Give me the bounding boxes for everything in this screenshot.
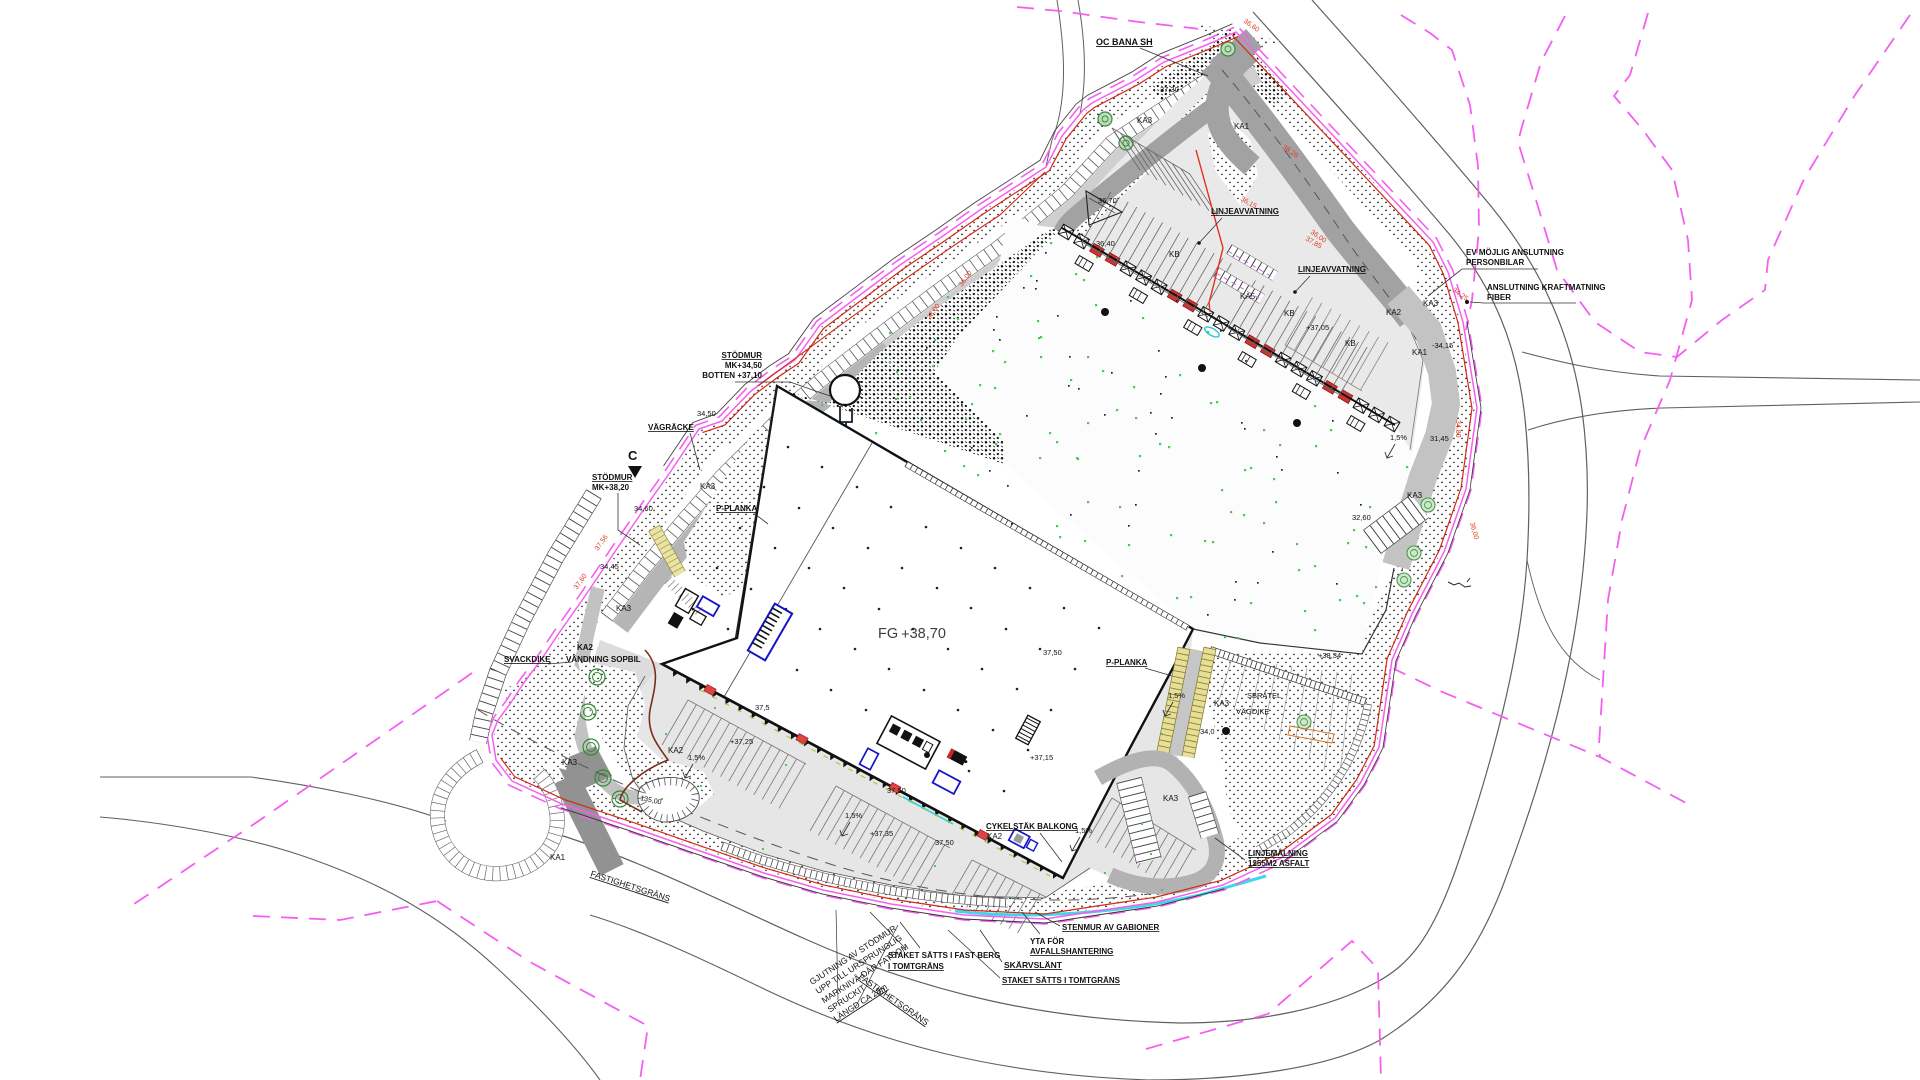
- svg-text:BOTTEN +37,10: BOTTEN +37,10: [702, 371, 762, 380]
- svg-text:KA3: KA3: [616, 604, 632, 613]
- svg-text:EV MÖJLIG ANSLUTNING: EV MÖJLIG ANSLUTNING: [1466, 248, 1564, 257]
- svg-text:KA5.: KA5.: [1240, 292, 1257, 301]
- svg-text:1,5%: 1,5%: [688, 753, 705, 762]
- svg-text:KB: KB: [1345, 339, 1356, 348]
- svg-text:VÄGDIKE: VÄGDIKE: [1236, 707, 1269, 716]
- svg-text:LINJEMÅLNING: LINJEMÅLNING: [1248, 849, 1308, 858]
- svg-text:KA2: KA2: [987, 832, 1003, 841]
- svg-text:34,45: 34,45: [600, 562, 619, 571]
- svg-text:36,70: 36,70: [1098, 196, 1117, 205]
- svg-text:P-PLANKA: P-PLANKA: [716, 504, 758, 513]
- svg-text:+38,34: +38,34: [1318, 651, 1341, 660]
- svg-text:1255M2 ASFALT: 1255M2 ASFALT: [1248, 859, 1309, 868]
- svg-text:+37,15: +37,15: [1030, 753, 1053, 762]
- svg-text:STÖDMUR: STÖDMUR: [722, 351, 763, 360]
- svg-text:34,80: 34,80: [1454, 420, 1461, 438]
- svg-text:37,50: 37,50: [887, 786, 906, 795]
- svg-text:KA1: KA1: [1412, 348, 1428, 357]
- svg-text:+37,25: +37,25: [730, 737, 753, 746]
- svg-text:KA2: KA2: [577, 643, 594, 652]
- svg-text:+37,35: +37,35: [870, 829, 893, 838]
- svg-text:OC BANA SH: OC BANA SH: [1096, 37, 1153, 47]
- svg-text:1,5%: 1,5%: [1168, 691, 1185, 700]
- svg-text:34,0: 34,0: [1200, 727, 1215, 736]
- svg-text:34,60: 34,60: [634, 504, 653, 513]
- svg-text:KA3: KA3: [1423, 299, 1439, 308]
- svg-text:PERSONBILAR: PERSONBILAR: [1466, 258, 1524, 267]
- svg-text:SKÄRVSLÄNT: SKÄRVSLÄNT: [1004, 960, 1063, 970]
- svg-text:AVFALLSHANTERING: AVFALLSHANTERING: [1030, 947, 1113, 956]
- svg-text:37,50: 37,50: [935, 838, 954, 847]
- svg-text:P-PLANKA: P-PLANKA: [1106, 658, 1148, 667]
- svg-text:KA3: KA3: [1137, 116, 1153, 125]
- svg-text:31,45: 31,45: [1430, 434, 1449, 443]
- svg-text:KA3: KA3: [562, 758, 578, 767]
- svg-text:STÖDMUR: STÖDMUR: [592, 473, 633, 482]
- svg-text:I TOMTGRÄNS: I TOMTGRÄNS: [888, 962, 945, 971]
- svg-text:37,5: 37,5: [755, 703, 770, 712]
- svg-text:KB: KB: [1284, 309, 1295, 318]
- svg-text:C: C: [628, 448, 638, 463]
- svg-text:CYKELSTÄK BALKONG: CYKELSTÄK BALKONG: [986, 822, 1078, 831]
- svg-text:STAKET SÄTTS I TOMTGRÄNS: STAKET SÄTTS I TOMTGRÄNS: [1002, 976, 1121, 985]
- svg-text:36,40: 36,40: [1096, 239, 1115, 248]
- svg-text:SBRÅTEL: SBRÅTEL: [1247, 691, 1281, 700]
- svg-text:1,5%: 1,5%: [845, 811, 862, 820]
- svg-text:LINJEAVVATNING: LINJEAVVATNING: [1211, 207, 1279, 216]
- svg-text:VÄNDNING SOPBIL: VÄNDNING SOPBIL: [566, 655, 641, 664]
- svg-text:MK+34,50: MK+34,50: [725, 361, 763, 370]
- svg-text:KA2: KA2: [1386, 308, 1402, 317]
- svg-text:34,50: 34,50: [697, 409, 716, 418]
- svg-text:KB: KB: [1169, 250, 1180, 259]
- svg-text:KA3: KA3: [1163, 794, 1179, 803]
- svg-text:KA3: KA3: [1407, 491, 1423, 500]
- svg-text:KA1: KA1: [1234, 122, 1250, 131]
- svg-text:37,50: 37,50: [1043, 648, 1062, 657]
- svg-text:STENMUR AV GABIONER: STENMUR AV GABIONER: [1062, 923, 1160, 932]
- svg-text:1,5%: 1,5%: [1075, 826, 1092, 835]
- svg-text:LINJEAVVATNING: LINJEAVVATNING: [1298, 265, 1366, 274]
- svg-text:KA3: KA3: [1214, 699, 1230, 708]
- svg-text:37,30: 37,30: [1160, 85, 1179, 94]
- svg-text:+37,05: +37,05: [1306, 323, 1329, 332]
- svg-text:1,5%: 1,5%: [1390, 433, 1407, 442]
- svg-text:KA2: KA2: [668, 746, 684, 755]
- svg-text:-34,15: -34,15: [1432, 341, 1453, 350]
- svg-text:FIBER: FIBER: [1487, 293, 1511, 302]
- svg-text:SVACKDIKE: SVACKDIKE: [504, 655, 551, 664]
- svg-text:KA1: KA1: [550, 853, 566, 862]
- svg-text:KA3: KA3: [700, 482, 716, 491]
- svg-text:MK+38,20: MK+38,20: [592, 483, 630, 492]
- svg-text:VÄGRÄCKE: VÄGRÄCKE: [648, 423, 694, 432]
- svg-text:32,60: 32,60: [1352, 513, 1371, 522]
- svg-text:ANSLUTNING KRAFTMATNING: ANSLUTNING KRAFTMATNING: [1487, 283, 1606, 292]
- svg-text:YTA FÖR: YTA FÖR: [1030, 937, 1064, 946]
